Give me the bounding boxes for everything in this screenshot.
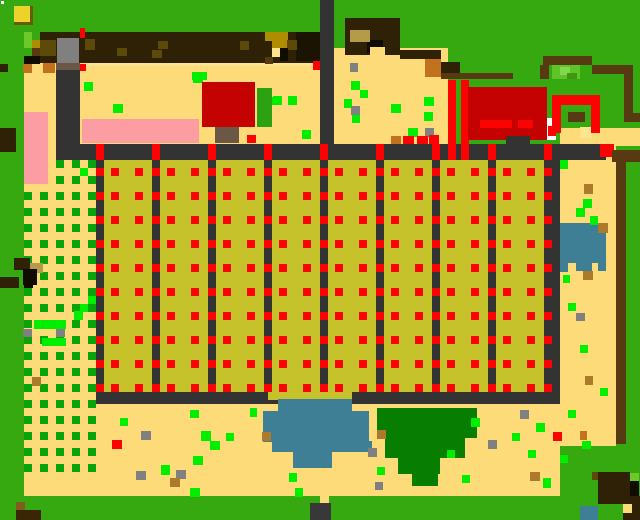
- farm-map-canvas[interactable]: [0, 0, 640, 520]
- farm-map-screen: [0, 0, 640, 520]
